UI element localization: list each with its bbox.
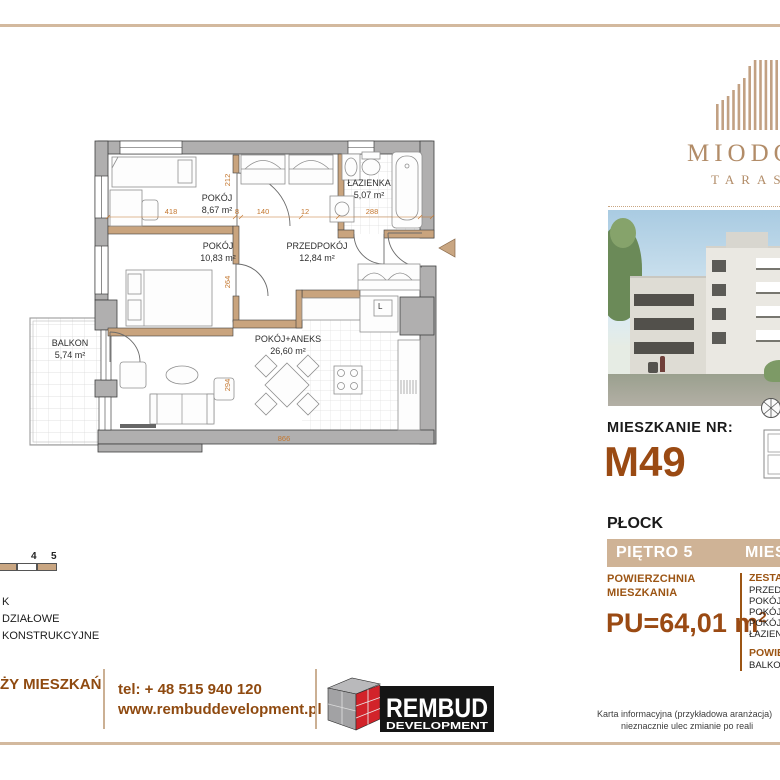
website-url: www.rembuddevelopment.pl bbox=[118, 701, 322, 718]
rooms-list-item: POKÓJ bbox=[749, 596, 780, 607]
rooms-list-item: ŁAZIEN bbox=[749, 629, 780, 640]
balcony-white bbox=[756, 306, 780, 318]
balcony-white bbox=[756, 282, 780, 294]
floor-bar: PIĘTRO 5 MIES bbox=[607, 539, 780, 567]
brand-name-bottom: TARAS bbox=[711, 172, 780, 188]
floor-label: PIĘTRO 5 bbox=[616, 539, 693, 567]
floor-bar-right-fragment: MIES bbox=[745, 539, 780, 567]
bush-right bbox=[764, 360, 780, 382]
room-label-przedpokoj: PRZEDPOKÓJ12,84 m² bbox=[269, 240, 365, 264]
entrance-arrow-icon bbox=[439, 239, 455, 257]
balcony-white bbox=[756, 330, 780, 342]
balcony-strip bbox=[634, 342, 694, 354]
room-label-pokoj-aneks: POKÓJ+ANEKS26,60 m² bbox=[240, 333, 336, 357]
area-label-line2: MIESZKANIA bbox=[607, 587, 677, 599]
scale-tick-5: 5 bbox=[51, 551, 57, 562]
brand-logo-bars-icon bbox=[690, 56, 780, 136]
building-render-photo bbox=[608, 210, 780, 406]
balcony-strip bbox=[634, 294, 694, 306]
fineprint-line-1: Karta informacyjna (przykładowa aranżacj… bbox=[597, 709, 772, 719]
room-label-balkon: BALKON5,74 m² bbox=[22, 337, 118, 361]
svg-text:264: 264 bbox=[223, 276, 232, 289]
person bbox=[660, 356, 665, 372]
area-value-text: PU=64,01 m bbox=[606, 608, 758, 638]
logo-subtitle: DEVELOPMENT bbox=[386, 721, 488, 732]
compass-and-keyplan bbox=[745, 389, 780, 484]
window bbox=[712, 332, 726, 344]
window bbox=[712, 284, 726, 296]
rooms-list-divider bbox=[740, 573, 742, 671]
apartment-number-label: MIESZKANIE NR: bbox=[607, 420, 733, 436]
rooms-list-subheader: POWIE bbox=[749, 647, 780, 659]
footer-separator-2 bbox=[315, 669, 317, 729]
rooms-list-item: PRZED bbox=[749, 585, 780, 596]
usable-area-value: PU=64,01 m2 bbox=[606, 608, 767, 639]
footer-separator-1 bbox=[103, 669, 105, 729]
room-label-lazienka: ŁAZIENKA5,07 m² bbox=[321, 177, 417, 201]
logo-wordmark: REMBUD bbox=[386, 693, 488, 723]
rooms-list-subitem: BALKO bbox=[749, 660, 780, 671]
window bbox=[712, 308, 726, 320]
svg-text:12: 12 bbox=[301, 207, 309, 216]
svg-text:294: 294 bbox=[223, 379, 232, 392]
area-label-line1: POWIERZCHNIA bbox=[607, 573, 696, 585]
svg-text:212: 212 bbox=[223, 174, 232, 187]
room-label-pokoj2: POKÓJ10,83 m² bbox=[170, 240, 266, 264]
photo-top-dotted-line bbox=[608, 206, 780, 207]
svg-text:288: 288 bbox=[366, 207, 379, 216]
legend-line-3: KONSTRUKCYJNE bbox=[2, 630, 99, 642]
city-label: PŁOCK bbox=[607, 515, 663, 533]
balcony-strip bbox=[634, 318, 694, 330]
fridge-label: L bbox=[378, 302, 382, 311]
tree-left-top bbox=[610, 218, 636, 248]
fineprint-line-2: nieznacznie ulec zmianie po reali bbox=[621, 721, 753, 731]
balcony-white bbox=[756, 258, 780, 270]
living-room-furniture bbox=[120, 362, 234, 428]
legend-line-1: K bbox=[2, 596, 9, 608]
rembud-logo: REMBUD DEVELOPMENT bbox=[322, 672, 500, 736]
phone-number: tel: + 48 515 940 120 bbox=[118, 681, 262, 698]
rooms-list-item: POKÓJ bbox=[749, 618, 780, 629]
scale-tick-4: 4 bbox=[31, 551, 37, 562]
keyplan-outline bbox=[764, 430, 780, 478]
apartment-number-value: M49 bbox=[604, 441, 686, 483]
roof-box bbox=[726, 232, 768, 248]
dining-set bbox=[255, 355, 319, 415]
scale-bar bbox=[0, 563, 58, 571]
bottom-divider-line bbox=[0, 742, 780, 745]
rooms-list-header: ZESTA bbox=[749, 572, 780, 584]
sales-office-fragment: ŻY MIESZKAŃ bbox=[0, 676, 101, 693]
person-with-stroller bbox=[648, 362, 658, 373]
brand-name-top: MIODO bbox=[687, 140, 780, 168]
rooms-list-item: POKÓJ bbox=[749, 607, 780, 618]
bedroom2-furniture bbox=[126, 270, 212, 326]
svg-text:866: 866 bbox=[278, 434, 291, 443]
window bbox=[712, 260, 726, 272]
legend-line-2: DZIAŁOWE bbox=[2, 613, 59, 625]
room-label-pokoj1: POKÓJ8,67 m² bbox=[169, 192, 265, 216]
